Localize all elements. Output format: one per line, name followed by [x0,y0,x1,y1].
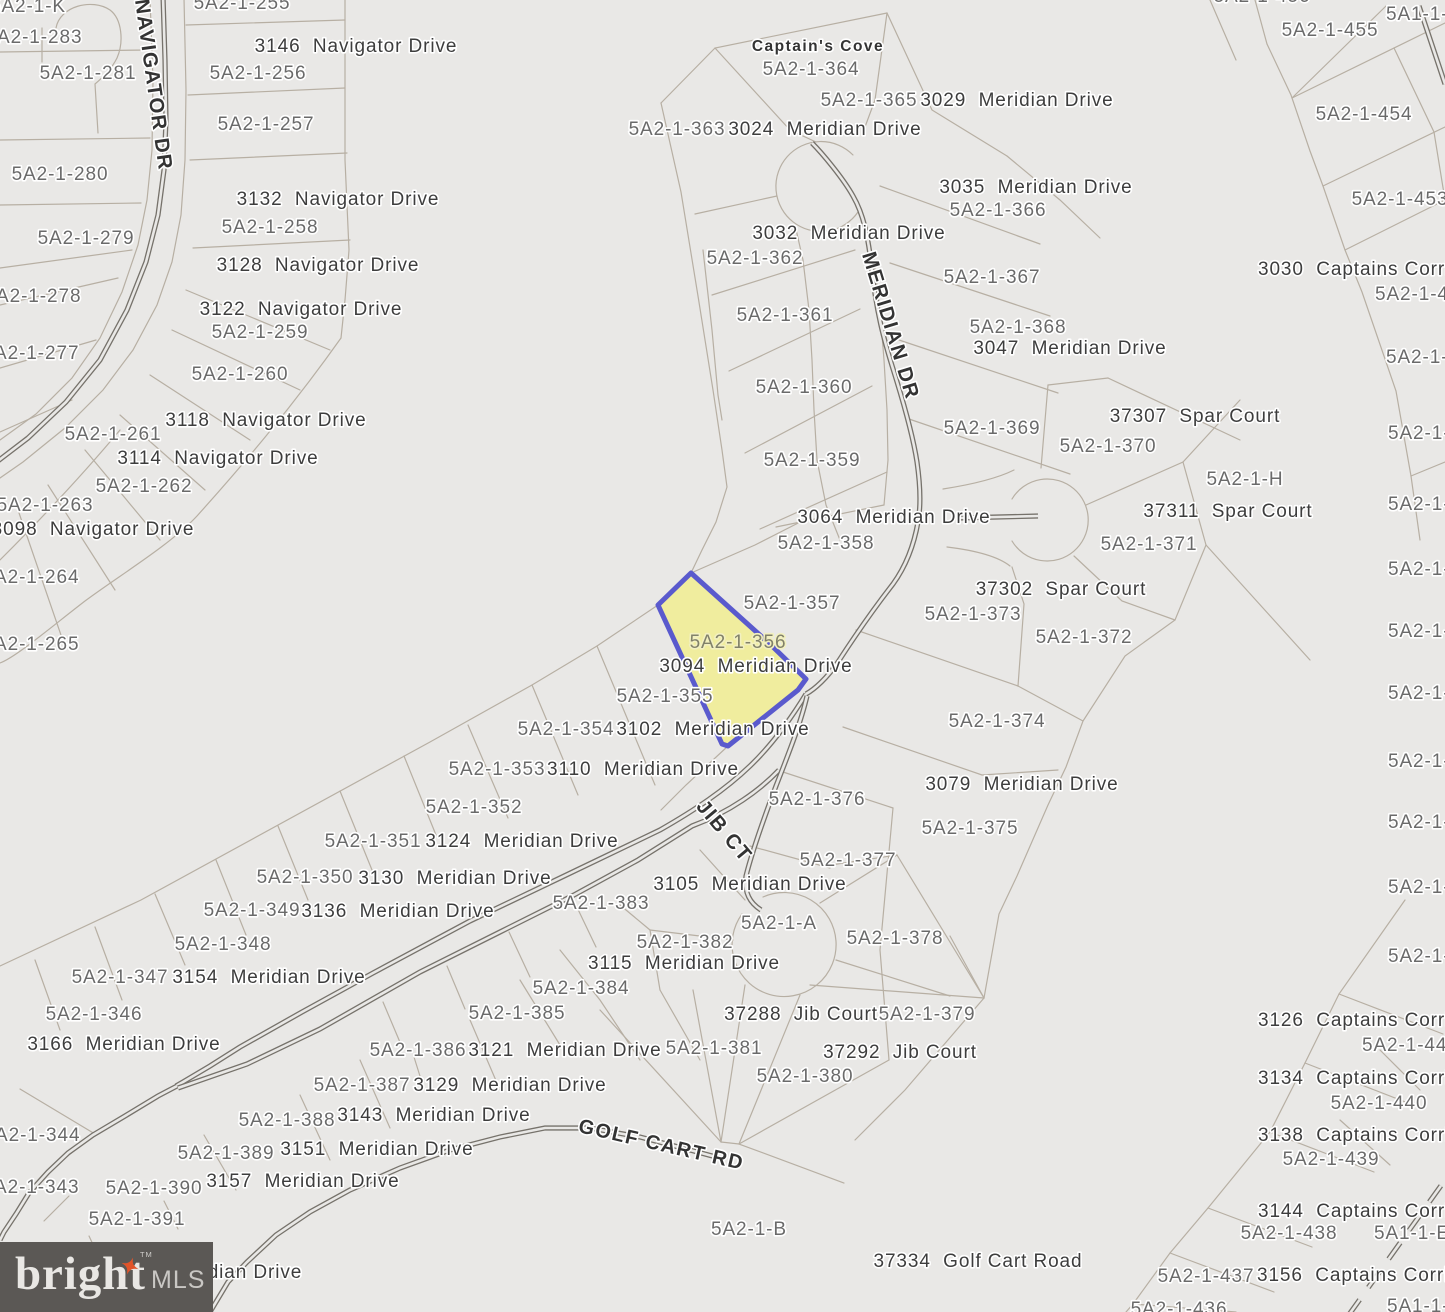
svg-text:5A2-1-440: 5A2-1-440 [1331,1093,1428,1114]
svg-text:5A2-1-256: 5A2-1-256 [210,63,307,84]
svg-text:5A2-1-366: 5A2-1-366 [950,200,1047,221]
svg-text:3114 Navigator Drive: 3114 Navigator Drive [117,448,318,469]
svg-text:3143 Meridian Drive: 3143 Meridian Drive [337,1105,530,1126]
svg-text:5A1-1-D: 5A1-1-D [1387,1296,1445,1312]
svg-text:5A2-1-446: 5A2-1-446 [1388,683,1445,704]
svg-text:3118 Navigator Drive: 3118 Navigator Drive [165,410,366,431]
svg-text:5A2-1-344: 5A2-1-344 [0,1125,80,1146]
svg-text:5A2-1-447: 5A2-1-447 [1388,621,1445,642]
svg-text:3064 Meridian Drive: 3064 Meridian Drive [797,507,990,528]
svg-text:5A2-1-388: 5A2-1-388 [239,1110,336,1131]
svg-text:5A2-1-260: 5A2-1-260 [192,364,289,385]
svg-text:5A2-1-367: 5A2-1-367 [944,267,1041,288]
svg-text:5A2-1-369: 5A2-1-369 [944,418,1041,439]
svg-text:5A2-1-437: 5A2-1-437 [1158,1266,1255,1287]
svg-text:3126 Captains Corridor: 3126 Captains Corridor [1258,1010,1445,1031]
svg-text:5A2-1-264: 5A2-1-264 [0,567,79,588]
svg-text:3029 Meridian Drive: 3029 Meridian Drive [920,90,1113,111]
svg-text:5A2-1-454: 5A2-1-454 [1316,104,1413,125]
svg-text:5A2-1-382: 5A2-1-382 [637,932,734,953]
svg-text:5A2-1-448: 5A2-1-448 [1388,559,1445,580]
svg-text:5A2-1-280: 5A2-1-280 [12,164,109,185]
svg-text:5A2-1-356: 5A2-1-356 [690,632,787,653]
svg-text:5A2-1-444: 5A2-1-444 [1388,812,1445,833]
svg-text:5A2-1-383: 5A2-1-383 [553,893,650,914]
svg-text:5A2-1-277: 5A2-1-277 [0,343,79,364]
svg-text:5A2-1-436: 5A2-1-436 [1131,1299,1228,1312]
svg-text:3144 Captains Corridor: 3144 Captains Corridor [1258,1201,1445,1222]
svg-text:37334 Golf Cart Road: 37334 Golf Cart Road [873,1251,1082,1272]
svg-text:5A2-1-384: 5A2-1-384 [533,978,630,999]
svg-text:5A2-1-452: 5A2-1-452 [1375,284,1445,305]
svg-text:5A2-1-374: 5A2-1-374 [949,711,1046,732]
svg-text:5A2-1-390: 5A2-1-390 [106,1178,203,1199]
svg-text:3130 Meridian Drive: 3130 Meridian Drive [358,868,551,889]
svg-text:TM: TM [140,1250,153,1259]
svg-text:3154 Meridian Drive: 3154 Meridian Drive [172,967,365,988]
svg-text:5A2-1-262: 5A2-1-262 [96,476,193,497]
svg-text:5A2-1-375: 5A2-1-375 [922,818,1019,839]
svg-text:37292 Jib Court: 37292 Jib Court [823,1042,977,1063]
svg-text:5A2-1-370: 5A2-1-370 [1060,436,1157,457]
svg-text:5A2-1-371: 5A2-1-371 [1101,534,1198,555]
svg-text:5A2-1-443: 5A2-1-443 [1388,877,1445,898]
svg-text:3094 Meridian Drive: 3094 Meridian Drive [659,656,852,677]
svg-text:5A2-1-257: 5A2-1-257 [218,114,315,135]
svg-text:5A2-1-343: 5A2-1-343 [0,1177,79,1198]
svg-text:37302 Spar Court: 37302 Spar Court [976,579,1147,600]
svg-text:5A2-1-373: 5A2-1-373 [925,604,1022,625]
svg-text:37288 Jib Court: 37288 Jib Court [724,1004,878,1025]
svg-text:5A2-1-386: 5A2-1-386 [370,1040,467,1061]
svg-text:5A2-1-362: 5A2-1-362 [707,248,804,269]
svg-text:5A2-1-259: 5A2-1-259 [212,322,309,343]
svg-text:5A2-1-357: 5A2-1-357 [744,593,841,614]
svg-text:5A2-1-352: 5A2-1-352 [426,797,523,818]
svg-text:5A2-1-353: 5A2-1-353 [449,759,546,780]
svg-text:5A2-1-449: 5A2-1-449 [1388,494,1445,515]
svg-text:5A2-1-350: 5A2-1-350 [257,867,354,888]
svg-text:3121 Meridian Drive: 3121 Meridian Drive [468,1040,661,1061]
svg-text:3136 Meridian Drive: 3136 Meridian Drive [301,901,494,922]
svg-text:5A2-1-385: 5A2-1-385 [469,1003,566,1024]
svg-text:3047 Meridian Drive: 3047 Meridian Drive [973,338,1166,359]
svg-text:37311 Spar Court: 37311 Spar Court [1143,501,1312,522]
svg-text:5A2-1-B: 5A2-1-B [711,1219,787,1240]
svg-text:5A2-1-263: 5A2-1-263 [0,495,93,516]
svg-text:3102 Meridian Drive: 3102 Meridian Drive [616,719,809,740]
svg-text:5A2-1-348: 5A2-1-348 [175,934,272,955]
svg-text:5A2-1-361: 5A2-1-361 [737,305,834,326]
svg-text:3166 Meridian Drive: 3166 Meridian Drive [27,1034,220,1055]
svg-text:5A2-1-372: 5A2-1-372 [1036,627,1133,648]
svg-text:3024 Meridian Drive: 3024 Meridian Drive [728,119,921,140]
svg-text:5A2-1-265: 5A2-1-265 [0,634,79,655]
svg-text:bright: bright [15,1248,146,1300]
svg-text:5A1-1-E: 5A1-1-E [1374,1223,1445,1244]
svg-text:5A2-1-450: 5A2-1-450 [1388,423,1445,444]
svg-text:5A2-1-354: 5A2-1-354 [518,719,615,740]
svg-text:5A2-1-377: 5A2-1-377 [800,850,897,871]
svg-text:3032 Meridian Drive: 3032 Meridian Drive [752,223,945,244]
svg-text:5A2-1-381: 5A2-1-381 [666,1038,763,1059]
svg-text:5A2-1-H: 5A2-1-H [1206,469,1283,490]
svg-text:5A2-1-380: 5A2-1-380 [757,1066,854,1087]
svg-text:3156 Captains Corridor: 3156 Captains Corridor [1257,1265,1445,1286]
svg-text:5A2-1-349: 5A2-1-349 [204,900,301,921]
svg-text:3138 Captains Corridor: 3138 Captains Corridor [1258,1125,1445,1146]
svg-text:5A2-1-360: 5A2-1-360 [756,377,853,398]
svg-text:3157 Meridian Drive: 3157 Meridian Drive [206,1171,399,1192]
svg-text:3132 Navigator Drive: 3132 Navigator Drive [237,189,440,210]
svg-text:5A2-1-281: 5A2-1-281 [40,63,137,84]
svg-text:5A2-1-347: 5A2-1-347 [72,967,169,988]
svg-text:5A2-1-258: 5A2-1-258 [222,217,319,238]
svg-text:3035 Meridian Drive: 3035 Meridian Drive [939,177,1132,198]
svg-text:5A2-1-389: 5A2-1-389 [178,1143,275,1164]
svg-text:MLS: MLS [151,1266,205,1294]
svg-text:5A2-1-278: 5A2-1-278 [0,286,81,307]
svg-text:3105 Meridian Drive: 3105 Meridian Drive [653,874,846,895]
svg-text:dian Drive: dian Drive [208,1262,303,1283]
svg-text:3151 Meridian Drive: 3151 Meridian Drive [280,1139,473,1160]
svg-text:5A1-1-4: 5A1-1-4 [1386,4,1445,25]
svg-text:5A2-1-368: 5A2-1-368 [970,317,1067,338]
svg-text:3115 Meridian Drive: 3115 Meridian Drive [588,953,780,974]
svg-text:5A2-1-355: 5A2-1-355 [617,686,714,707]
svg-text:3146 Navigator Drive: 3146 Navigator Drive [255,36,458,57]
svg-text:5A2-1-439: 5A2-1-439 [1283,1149,1380,1170]
svg-text:5A2-1-456: 5A2-1-456 [1214,0,1311,7]
svg-text:5A2-1-358: 5A2-1-358 [778,533,875,554]
svg-text:5A2-1-442: 5A2-1-442 [1388,946,1445,967]
svg-text:3098 Navigator Drive: 3098 Navigator Drive [0,519,194,540]
svg-text:Captain's Cove: Captain's Cove [752,38,884,55]
svg-text:3129 Meridian Drive: 3129 Meridian Drive [413,1075,606,1096]
svg-text:5A2-1-378: 5A2-1-378 [847,928,944,949]
svg-text:5A2-1-453: 5A2-1-453 [1352,189,1445,210]
svg-text:3124 Meridian Drive: 3124 Meridian Drive [425,831,618,852]
svg-text:5A2-1-K: 5A2-1-K [0,0,66,17]
svg-text:5A2-1-261: 5A2-1-261 [65,424,162,445]
svg-text:5A2-1-376: 5A2-1-376 [769,789,866,810]
svg-text:5A2-1-391: 5A2-1-391 [89,1209,186,1230]
svg-text:3134 Captains Corridor: 3134 Captains Corridor [1258,1068,1445,1089]
svg-text:3030 Captains Corridor: 3030 Captains Corridor [1258,259,1445,280]
svg-text:5A2-1-A: 5A2-1-A [741,913,817,934]
svg-text:5A2-1-255: 5A2-1-255 [194,0,291,14]
svg-text:5A2-1-346: 5A2-1-346 [46,1004,143,1025]
svg-text:5A2-1-455: 5A2-1-455 [1282,20,1379,41]
svg-text:3110 Meridian Drive: 3110 Meridian Drive [547,759,739,780]
svg-text:5A2-1-451: 5A2-1-451 [1386,347,1445,368]
svg-text:5A2-1-359: 5A2-1-359 [764,450,861,471]
svg-text:3128 Navigator Drive: 3128 Navigator Drive [217,255,420,276]
svg-text:5A2-1-379: 5A2-1-379 [879,1004,976,1025]
svg-text:5A2-1-279: 5A2-1-279 [38,228,135,249]
svg-text:3079 Meridian Drive: 3079 Meridian Drive [925,774,1118,795]
svg-text:5A2-1-365: 5A2-1-365 [821,90,918,111]
svg-text:5A2-1-438: 5A2-1-438 [1241,1223,1338,1244]
svg-text:5A2-1-363: 5A2-1-363 [629,119,726,140]
svg-text:5A2-1-283: 5A2-1-283 [0,27,82,48]
svg-text:37307 Spar Court: 37307 Spar Court [1110,406,1281,427]
svg-text:5A2-1-351: 5A2-1-351 [325,831,422,852]
svg-text:5A2-1-387: 5A2-1-387 [314,1075,411,1096]
svg-text:3122 Navigator Drive: 3122 Navigator Drive [200,299,403,320]
svg-text:5A2-1-364: 5A2-1-364 [763,59,860,80]
svg-text:5A2-1-445: 5A2-1-445 [1388,751,1445,772]
svg-text:5A2-1-441: 5A2-1-441 [1362,1035,1445,1056]
